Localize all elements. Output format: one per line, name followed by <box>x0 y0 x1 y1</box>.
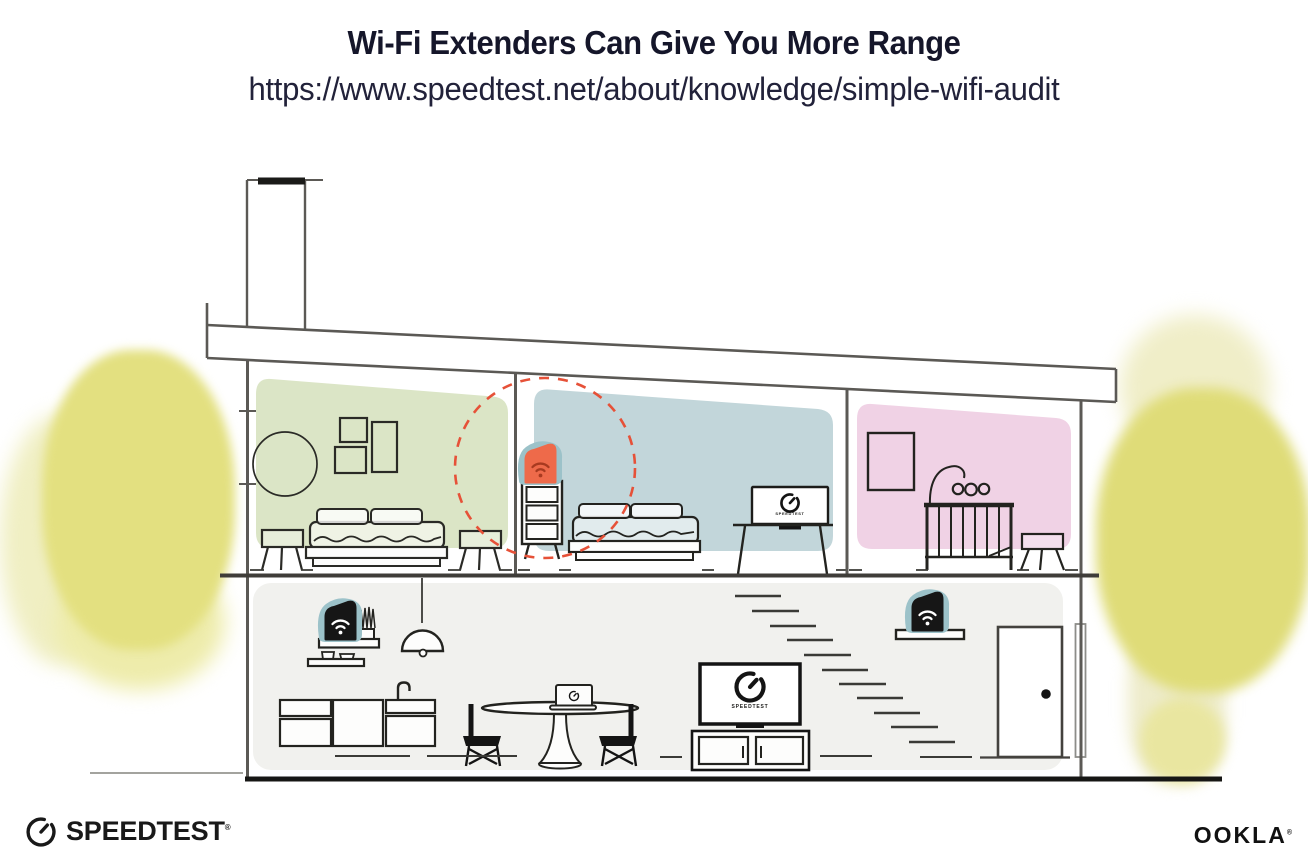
tv-console <box>692 731 809 770</box>
nightstand <box>262 530 303 570</box>
trademark-symbol: ® <box>1287 829 1292 836</box>
laptop <box>550 685 596 710</box>
roof <box>207 180 1116 402</box>
bedroom-tv-brand-label: SPEEDTEST <box>760 511 820 516</box>
living-tv <box>700 664 800 728</box>
speedtest-wordmark: SPEEDTEST® <box>66 816 230 847</box>
house-linework <box>0 0 1308 861</box>
ground <box>90 773 1222 779</box>
living-tv-brand-label: SPEEDTEST <box>720 704 780 710</box>
wifi-extender-bedroom <box>518 441 562 485</box>
stool <box>1021 534 1064 570</box>
trademark-symbol: ® <box>225 823 231 832</box>
ookla-logo: OOKLA® <box>1194 822 1292 849</box>
doorknob <box>1041 689 1051 699</box>
house-illustration: SPEEDTEST SPEEDTEST <box>0 0 1308 861</box>
nightstand <box>460 531 501 570</box>
speedtest-logo: SPEEDTEST® <box>24 814 230 848</box>
ookla-wordmark: OOKLA <box>1194 822 1287 848</box>
speedtest-gauge-icon <box>24 814 58 848</box>
bed <box>569 504 700 560</box>
infographic-page: Wi-Fi Extenders Can Give You More Range … <box>0 0 1308 861</box>
